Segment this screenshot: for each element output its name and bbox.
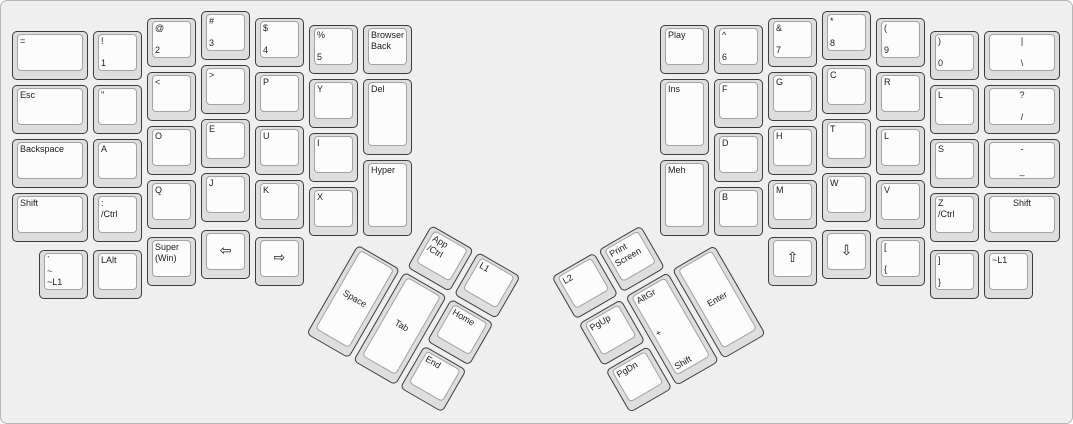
key-label: Home — [450, 307, 476, 329]
key-label: Shift — [673, 354, 694, 373]
key-z-ctrl[interactable]: Z/Ctrl — [930, 193, 979, 242]
key-label: F — [722, 84, 728, 95]
key-label: Super — [155, 242, 179, 253]
key-q[interactable]: Q — [147, 180, 196, 229]
key-label: PgUp — [588, 313, 613, 334]
key-label: /Ctrl — [938, 209, 955, 220]
key-label: PgDn — [615, 360, 640, 381]
key-colon-ctrl[interactable]: :/Ctrl — [93, 193, 142, 242]
keycap-top: ⇩ — [827, 233, 866, 270]
key-p[interactable]: P — [255, 72, 304, 121]
key-label: ^ — [722, 30, 726, 41]
key-label: _ — [1019, 166, 1024, 177]
keycap-top: L — [935, 88, 974, 125]
keycap-top: J — [206, 176, 245, 213]
key-label: R — [884, 77, 891, 88]
key-label: { — [884, 264, 887, 275]
key-label: Play — [668, 30, 686, 41]
key-label: 2 — [155, 45, 160, 56]
keycap-top: PrintScreen — [604, 231, 656, 283]
key-4[interactable]: $4 — [255, 18, 304, 67]
key-label: /Ctrl — [101, 209, 118, 220]
key-tilde-l1[interactable]: ~L1 — [984, 250, 1033, 299]
keycap-top: &7 — [773, 21, 812, 58]
keycap-top: Shift — [989, 196, 1055, 233]
key-del[interactable]: Del — [363, 79, 412, 155]
keycap-top: LAlt — [98, 253, 137, 290]
keycap-top: T — [827, 122, 866, 159]
keycap-top: %5 — [314, 28, 353, 65]
keycap-top: `~~L1 — [44, 253, 83, 290]
keycap-top: X — [314, 190, 353, 227]
key-label: ~L1 — [992, 255, 1007, 266]
keycap-top: -_ — [989, 142, 1055, 179]
key-r[interactable]: R — [876, 72, 925, 121]
keycap-top: App/Ctrl — [416, 230, 468, 282]
keycap-top: L1 — [463, 257, 515, 309]
keycap-top: )0 — [935, 34, 974, 71]
keyboard-case: =!1@2#3$4%5BrowserBackEsc"<>PYDelBackspa… — [0, 0, 1073, 424]
key-label: L1 — [477, 260, 491, 275]
key-label: # — [209, 16, 214, 27]
key-label: Hyper — [371, 165, 395, 176]
keycap-top: :/Ctrl — [98, 196, 137, 233]
key-f[interactable]: F — [714, 79, 763, 128]
key-i[interactable]: I — [309, 133, 358, 182]
key-arrow-left[interactable]: ⇦ — [201, 230, 250, 279]
key-label: Ins — [668, 84, 680, 95]
key-minus-underscore[interactable]: -_ — [984, 139, 1060, 188]
keycap-top: R — [881, 75, 920, 112]
keycap-top: Home — [436, 304, 488, 356]
key-label: [ — [884, 242, 887, 253]
keycap-top: PgUp — [584, 304, 636, 356]
key-label: | — [1021, 36, 1023, 47]
key-label: 1 — [101, 58, 106, 69]
key-label: 4 — [263, 45, 268, 56]
key-double-quote[interactable]: " — [93, 85, 142, 134]
key-t[interactable]: T — [822, 119, 871, 168]
key-label: Shift — [1013, 198, 1031, 209]
keycap-top: !1 — [98, 34, 137, 71]
keycap-top: End — [409, 351, 461, 403]
key-label: LAlt — [101, 255, 117, 266]
key-e[interactable]: E — [201, 119, 250, 168]
key-label: L — [884, 131, 889, 142]
keycap-top: Play — [665, 28, 704, 65]
key-label: 9 — [884, 45, 889, 56]
key-label: C — [830, 70, 837, 81]
key-shift-right[interactable]: Shift — [984, 193, 1060, 242]
keycap-top: [{ — [881, 240, 920, 277]
key-label: I — [317, 138, 320, 149]
key-label: P — [263, 77, 269, 88]
key-label: V — [884, 185, 890, 196]
key-j[interactable]: J — [201, 173, 250, 222]
key-label: Q — [155, 185, 162, 196]
key-0[interactable]: )0 — [930, 31, 979, 80]
key-label: Del — [371, 84, 385, 95]
key-label: U — [263, 131, 270, 142]
key-label: ~L1 — [47, 277, 62, 288]
key-1[interactable]: !1 — [93, 31, 142, 80]
key-label: 6 — [722, 52, 727, 63]
key-grave-l1[interactable]: `~~L1 — [39, 250, 88, 299]
key-label: ~ — [47, 266, 52, 277]
key-m[interactable]: M — [768, 180, 817, 229]
key-label: L2 — [561, 272, 575, 287]
key-label: ) — [938, 36, 941, 47]
key-label: 7 — [776, 45, 781, 56]
key-label: & — [776, 23, 782, 34]
keycap-top: Del — [368, 82, 407, 146]
key-label: + — [654, 327, 664, 339]
key-y[interactable]: Y — [309, 79, 358, 128]
key-label: - — [1021, 144, 1024, 155]
keycap-top: < — [152, 75, 191, 112]
key-7[interactable]: &7 — [768, 18, 817, 67]
key-label: K — [263, 185, 269, 196]
key-lbracket[interactable]: [{ — [876, 237, 925, 286]
keycap-top: Hyper — [368, 163, 407, 227]
key-label: $ — [263, 23, 268, 34]
keycap-top: P — [260, 75, 299, 112]
key-9[interactable]: (9 — [876, 18, 925, 67]
keycap-top: Q — [152, 183, 191, 220]
key-label: Backspace — [20, 144, 64, 155]
keycap-top: C — [827, 68, 866, 105]
keycap-top: Backspace — [17, 142, 83, 179]
key-label: Meh — [668, 165, 686, 176]
keycap-top: BrowserBack — [368, 28, 407, 65]
key-label: } — [938, 277, 941, 288]
key-label: Z — [938, 198, 944, 209]
key-d[interactable]: D — [714, 133, 763, 182]
key-l-top[interactable]: L — [930, 85, 979, 134]
key-question-slash[interactable]: ?/ — [984, 85, 1060, 134]
key-arrow-down[interactable]: ⇩ — [822, 230, 871, 279]
key-label: B — [722, 192, 728, 203]
key-label: 5 — [317, 52, 322, 63]
key-label: ⇩ — [841, 246, 853, 257]
key-label: < — [155, 77, 160, 88]
keycap-top: O — [152, 129, 191, 166]
key-label: A — [101, 144, 107, 155]
keycap-top: A — [98, 142, 137, 179]
key-label: D — [722, 138, 729, 149]
keycap-top: L — [881, 129, 920, 166]
key-label: O — [155, 131, 162, 142]
key-5[interactable]: %5 — [309, 25, 358, 74]
key-label: 3 — [209, 38, 214, 49]
key-label: H — [776, 131, 783, 142]
key-meh[interactable]: Meh — [660, 160, 709, 236]
key-s[interactable]: S — [930, 139, 979, 188]
keycap-top: K — [260, 183, 299, 220]
key-label: " — [101, 90, 104, 101]
key-o[interactable]: O — [147, 126, 196, 175]
key-label: ⇦ — [220, 246, 232, 257]
key-less-than[interactable]: < — [147, 72, 196, 121]
keycap-top: U — [260, 129, 299, 166]
key-label: ! — [101, 36, 104, 47]
key-8[interactable]: *8 — [822, 11, 871, 60]
key-6[interactable]: ^6 — [714, 25, 763, 74]
key-label: AltGr — [635, 287, 658, 307]
key-g[interactable]: G — [768, 72, 817, 121]
key-label: @ — [155, 23, 164, 34]
keycap-top: ~L1 — [989, 253, 1028, 290]
keycap-top: I — [314, 136, 353, 173]
keycap-top: Meh — [665, 163, 704, 227]
keycap-top: ]} — [935, 253, 974, 290]
key-pipe-backslash[interactable]: |\ — [984, 31, 1060, 80]
key-backspace[interactable]: Backspace — [12, 139, 88, 188]
key-k[interactable]: K — [255, 180, 304, 229]
keycap-top: ?/ — [989, 88, 1055, 125]
key-arrow-up[interactable]: ⇧ — [768, 237, 817, 286]
key-label: J — [209, 178, 214, 189]
key-c[interactable]: C — [822, 65, 871, 114]
key-label: M — [776, 185, 784, 196]
keycap-top: (9 — [881, 21, 920, 58]
key-label: ? — [1019, 90, 1024, 101]
key-label: Browser — [371, 30, 404, 41]
key-label: X — [317, 192, 323, 203]
keycap-top: > — [206, 68, 245, 105]
key-label: E — [209, 124, 215, 135]
key-label: ( — [884, 23, 887, 34]
key-label: L — [938, 90, 943, 101]
keycap-top: $4 — [260, 21, 299, 58]
key-2[interactable]: @2 — [147, 18, 196, 67]
keycap-top: #3 — [206, 14, 245, 51]
key-h[interactable]: H — [768, 126, 817, 175]
keycap-top: @2 — [152, 21, 191, 58]
key-label: > — [209, 70, 214, 81]
keycap-top: ⇨ — [260, 240, 299, 277]
key-u[interactable]: U — [255, 126, 304, 175]
key-label: Back — [371, 41, 391, 52]
key-label: Shift — [20, 198, 38, 209]
keycap-top: G — [773, 75, 812, 112]
key-esc[interactable]: Esc — [12, 85, 88, 134]
keycap-top: V — [881, 183, 920, 220]
key-label: (Win) — [155, 253, 177, 264]
key-browser-back[interactable]: BrowserBack — [363, 25, 412, 74]
keycap-top: Super(Win) — [152, 240, 191, 277]
keycap-top: Esc — [17, 88, 83, 125]
keycap-top: E — [206, 122, 245, 159]
key-label: ` — [47, 255, 50, 266]
key-label: ⇧ — [787, 253, 799, 264]
keycap-top: S — [935, 142, 974, 179]
keycap-top: D — [719, 136, 758, 173]
keycap-top: F — [719, 82, 758, 119]
key-label: W — [830, 178, 839, 189]
key-label: Y — [317, 84, 323, 95]
key-label: T — [830, 124, 836, 135]
keycap-top: B — [719, 190, 758, 227]
key-play[interactable]: Play — [660, 25, 709, 74]
key-label: Enter — [705, 289, 729, 309]
key-label: = — [20, 36, 25, 47]
key-label: % — [317, 30, 325, 41]
keycap-top: W — [827, 176, 866, 213]
key-w[interactable]: W — [822, 173, 871, 222]
keycap-top: Ins — [665, 82, 704, 146]
key-label: \ — [1021, 58, 1024, 69]
keycap-top: *8 — [827, 14, 866, 51]
keycap-top: " — [98, 88, 137, 125]
key-l-home[interactable]: L — [876, 126, 925, 175]
key-arrow-right[interactable]: ⇨ — [255, 237, 304, 286]
key-rbracket[interactable]: ]} — [930, 250, 979, 299]
key-label: S — [938, 144, 944, 155]
key-b[interactable]: B — [714, 187, 763, 236]
key-lalt[interactable]: LAlt — [93, 250, 142, 299]
keycap-top: Z/Ctrl — [935, 196, 974, 233]
key-shift-left[interactable]: Shift — [12, 193, 88, 242]
key-label: * — [830, 16, 834, 27]
key-label: Tab — [392, 318, 410, 335]
key-super-win[interactable]: Super(Win) — [147, 237, 196, 286]
key-label: Space — [341, 288, 369, 310]
keycap-top: Y — [314, 82, 353, 119]
key-label: ] — [938, 255, 941, 266]
keycap-top: Shift — [17, 196, 83, 233]
key-label: End — [423, 354, 442, 372]
keycap-top: ⇧ — [773, 240, 812, 277]
key-ins[interactable]: Ins — [660, 79, 709, 155]
keycap-top: |\ — [989, 34, 1055, 71]
key-label: ⇨ — [274, 253, 286, 264]
key-v[interactable]: V — [876, 180, 925, 229]
key-label: Esc — [20, 90, 35, 101]
key-equals[interactable]: = — [12, 31, 88, 80]
keycap-top: = — [17, 34, 83, 71]
key-label: 8 — [830, 38, 835, 49]
key-x[interactable]: X — [309, 187, 358, 236]
keycap-top: PgDn — [611, 351, 663, 403]
key-label: G — [776, 77, 783, 88]
keycap-top: M — [773, 183, 812, 220]
key-a[interactable]: A — [93, 139, 142, 188]
key-label: 0 — [938, 58, 943, 69]
key-3[interactable]: #3 — [201, 11, 250, 60]
keycap-top: ^6 — [719, 28, 758, 65]
keycap-top: H — [773, 129, 812, 166]
keycap-top: L2 — [557, 258, 609, 310]
keycap-top: ⇦ — [206, 233, 245, 270]
key-hyper[interactable]: Hyper — [363, 160, 412, 236]
key-label: / — [1021, 112, 1024, 123]
key-label: : — [101, 198, 104, 209]
key-greater-than[interactable]: > — [201, 65, 250, 114]
